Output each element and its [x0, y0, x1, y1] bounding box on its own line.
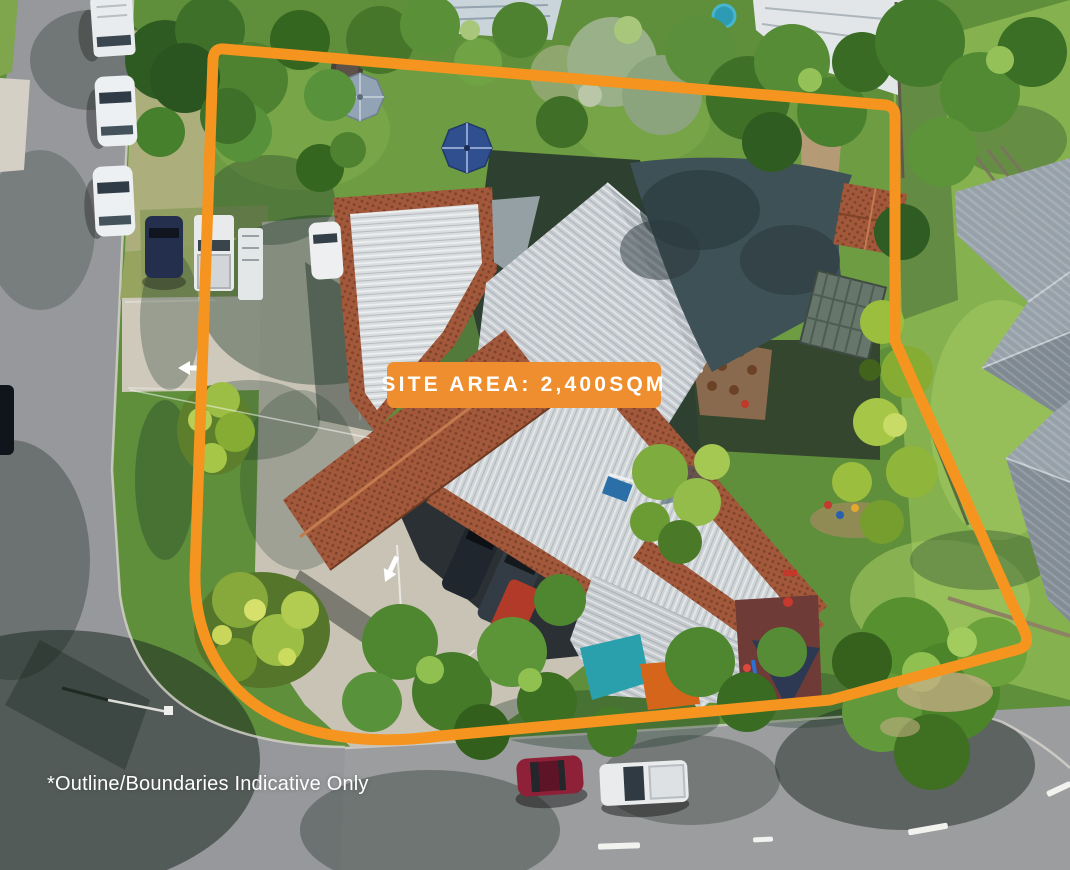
site-area-label: SITE AREA: 2,400SQM	[381, 373, 666, 397]
aerial-property-photo: SITE AREA: 2,400SQM *Outline/Boundaries …	[0, 0, 1070, 870]
blue-umbrella	[442, 123, 492, 173]
garden-bed-corner	[194, 572, 330, 688]
road-white-ute	[599, 760, 690, 820]
property-navy-suv	[142, 216, 186, 290]
site-area-badge: SITE AREA: 2,400SQM	[387, 362, 661, 408]
white-car-by-building	[308, 221, 344, 280]
aerial-photo-scene	[0, 0, 1070, 870]
parked-dark-car-left-edge	[0, 385, 14, 455]
property-white-van	[238, 228, 263, 300]
road-maroon-car	[513, 755, 588, 811]
boundary-disclaimer: *Outline/Boundaries Indicative Only	[47, 773, 369, 796]
